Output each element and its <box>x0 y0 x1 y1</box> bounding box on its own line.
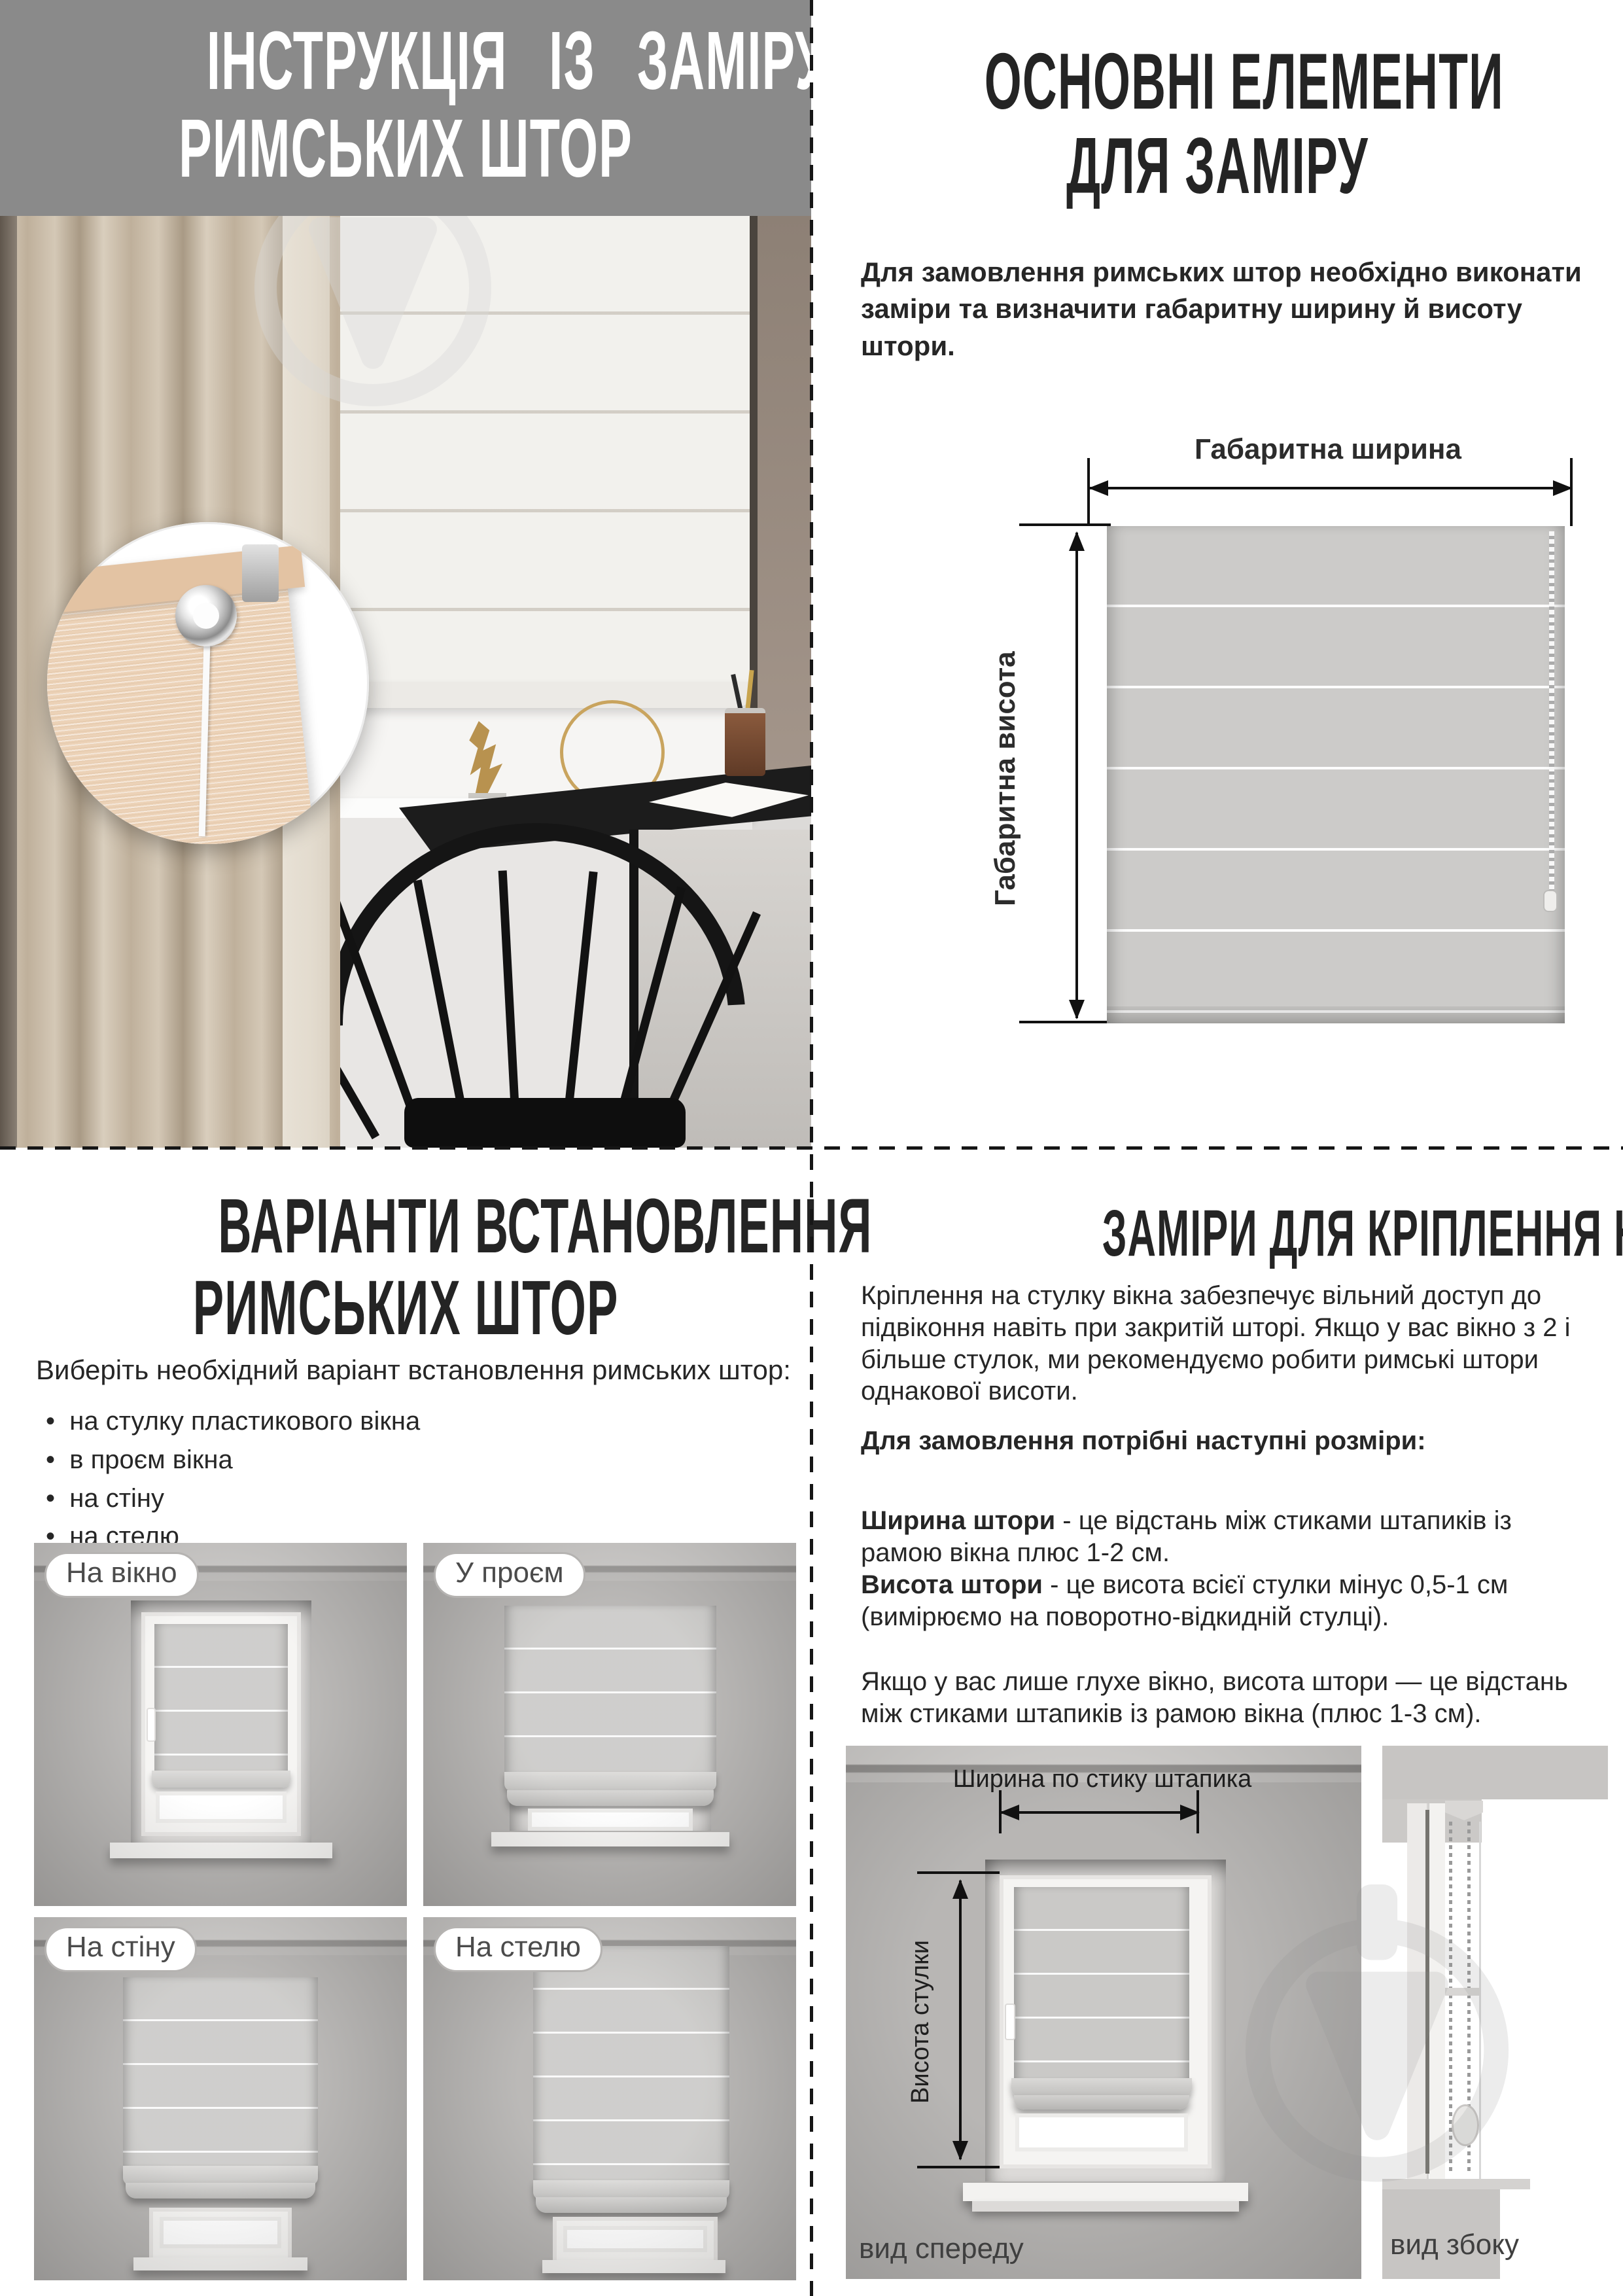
front-blind-fabric <box>1014 1887 1189 2083</box>
window-handle <box>147 1708 156 1742</box>
bl-subtitle: Виберіть необхідний варіант встановлення… <box>36 1353 795 1386</box>
sash-height-tick-top <box>917 1871 1000 1874</box>
blind-fabric <box>123 1977 318 2170</box>
br-para1: Кріплення на стулку вікна забезпечує віл… <box>861 1280 1597 1407</box>
width-term: Ширина штори <box>861 1506 1055 1535</box>
width-tick-left <box>1087 458 1090 526</box>
front-view-caption: вид спереду <box>859 2233 1024 2265</box>
blind-fabric <box>154 1624 288 1776</box>
bl-title-line2: РИМСЬКИХ ШТОР <box>193 1267 619 1349</box>
height-tick-top <box>1019 523 1111 526</box>
window-glazing <box>563 2226 707 2252</box>
bl-title-line1: ВАРІАНТИ ВСТАНОВЛЕННЯ <box>218 1186 872 1267</box>
br-lead: Для замовлення потрібні наступні розміри… <box>861 1425 1597 1457</box>
front-windowsill <box>963 2183 1248 2201</box>
photo-left-wall-edge <box>0 216 17 1148</box>
window-frame <box>141 1612 301 1836</box>
list-item: • в проєм вікна <box>46 1444 765 1476</box>
windowsill <box>133 2257 307 2270</box>
chair <box>306 823 764 1148</box>
blind-fold <box>504 1772 716 1792</box>
br-title-line: ЗАМІРИ ДЛЯ КРІПЛЕННЯ НА СТУЛКУ ВІКНА <box>1102 1199 1623 1268</box>
windowsill <box>110 1843 332 1858</box>
page-title-line1: ІНСТРУКЦІЯ ІЗ ЗАМІРУ <box>207 17 827 105</box>
variant-on-window: На вікно <box>34 1543 407 1906</box>
height-tick-bottom <box>1019 1021 1111 1023</box>
list-item-label: в проєм вікна <box>69 1445 233 1474</box>
height-term: Висота штори <box>861 1570 1043 1599</box>
br-para2: Якщо у вас лише глухе вікно, висота штор… <box>861 1666 1597 1730</box>
side-view-caption: вид збоку <box>1390 2229 1519 2261</box>
mounting-options-list: • на стулку пластикового вікна • в проєм… <box>46 1405 765 1553</box>
sash-height-label: Висота стулки <box>907 1924 935 2120</box>
overall-height-arrow-icon <box>1075 533 1078 1018</box>
sash-height-arrow-icon <box>959 1881 962 2159</box>
front-window-glazing <box>1015 2113 1188 2151</box>
front-window-recess <box>985 1860 1226 2181</box>
grommet-detail-inset <box>47 522 369 844</box>
sash-width-arrow-icon <box>1001 1811 1198 1814</box>
blind-bottom-hem <box>1107 1006 1565 1023</box>
side-sash-profile <box>1429 1803 1445 2181</box>
photo-roman-blind <box>330 216 752 707</box>
list-item: • на стулку пластикового вікна <box>46 1405 765 1438</box>
br-width-definition: Ширина штори - це відстань між стиками ш… <box>861 1505 1597 1569</box>
side-chain-weight <box>1452 2104 1479 2146</box>
blind-fold <box>536 2197 727 2213</box>
horizontal-divider <box>0 1146 1623 1150</box>
instruction-sheet: ІНСТРУКЦІЯ ІЗ ЗАМІРУ РИМСЬКИХ ШТОР <box>0 0 1623 2296</box>
list-item-label: на стулку пластикового вікна <box>69 1407 420 1436</box>
variant-on-wall: На стіну <box>34 1917 407 2280</box>
page-title: ІНСТРУКЦІЯ ІЗ ЗАМІРУ РИМСЬКИХ ШТОР <box>0 0 811 192</box>
variant-label-pill: На стіну <box>44 1926 197 1972</box>
side-view-diagram: вид збоку <box>1382 1746 1608 2279</box>
variant-label-pill: На стелю <box>434 1926 602 1972</box>
window-frame <box>149 2208 292 2263</box>
inset-mount-bracket <box>242 544 279 602</box>
photo-blind-hem <box>330 682 752 708</box>
width-tick-right <box>1570 458 1573 526</box>
grommet-hole <box>193 603 219 629</box>
sash-width-label: Ширина по стику штапика <box>916 1765 1289 1793</box>
tr-title-line1: ОСНОВНІ ЕЛЕМЕНТИ <box>985 39 1504 124</box>
window-glazing <box>156 1792 287 1823</box>
bl-title: ВАРІАНТИ ВСТАНОВЛЕННЯ РИМСЬКИХ ШТОР <box>0 1186 811 1349</box>
blind-fabric <box>533 1946 729 2184</box>
overall-width-arrow-icon <box>1090 487 1571 489</box>
variant-label-pill: У проєм <box>434 1552 585 1598</box>
grommet-icon <box>175 585 237 646</box>
roman-blind-room-photo <box>0 216 811 1148</box>
front-window-frame <box>1000 1875 1212 2168</box>
pen-cup <box>725 708 765 776</box>
side-lintel <box>1382 1746 1608 1799</box>
overall-height-label: Габаритна висота <box>989 582 1022 975</box>
br-title: ЗАМІРИ ДЛЯ КРІПЛЕННЯ НА СТУЛКУ ВІКНА <box>811 1199 1623 1268</box>
sash-width-tick-right <box>1196 1790 1199 1833</box>
photo-right-wall <box>758 216 811 772</box>
tr-intro: Для замовлення римських штор необхідно в… <box>861 254 1587 364</box>
variant-on-ceiling: На стелю <box>423 1917 796 2280</box>
blind-chain-weight <box>1543 890 1558 912</box>
front-blind-fold <box>1014 2095 1189 2110</box>
sash-height-tick-bottom <box>917 2166 1000 2168</box>
overall-width-label: Габаритна ширина <box>1066 433 1590 466</box>
window-frame <box>553 2217 718 2267</box>
bullet-icon: • <box>46 1407 55 1436</box>
bullet-icon: • <box>46 1484 55 1513</box>
front-sill-step <box>972 2201 1239 2212</box>
blind-chain-icon <box>1549 531 1554 898</box>
side-cord <box>1479 1822 1481 2185</box>
tr-title-line2: ДЛЯ ЗАМІРУ <box>1066 124 1369 208</box>
sash-width-tick-left <box>999 1790 1002 1833</box>
blind-fold <box>152 1771 290 1788</box>
window-recess <box>131 1600 311 1843</box>
page-title-line2: РИМСЬКИХ ШТОР <box>179 105 633 192</box>
variant-label-pill: На вікно <box>44 1552 199 1598</box>
variant-in-opening: У проєм <box>423 1543 796 1906</box>
side-mid-bracket <box>1445 1988 1480 1996</box>
chair-seat <box>404 1098 686 1148</box>
windowsill <box>491 1832 729 1846</box>
blind-fabric <box>504 1606 716 1777</box>
front-blind-fold <box>1011 2078 1192 2096</box>
br-height-definition: Висота штори - це висота всієї стулки мі… <box>861 1569 1597 1633</box>
blind-diagram <box>1107 526 1565 1023</box>
tr-title: ОСНОВНІ ЕЛЕМЕНТИ ДЛЯ ЗАМІРУ <box>811 39 1623 209</box>
blind-fold <box>507 1790 714 1806</box>
front-window-handle <box>1005 2004 1015 2040</box>
list-item: • на стіну <box>46 1483 765 1515</box>
list-item-label: на стіну <box>69 1484 164 1513</box>
windowsill <box>542 2260 725 2273</box>
tl-header-band: ІНСТРУКЦІЯ ІЗ ЗАМІРУ РИМСЬКИХ ШТОР <box>0 0 811 216</box>
window-glazing <box>528 1809 693 1831</box>
blind-fold <box>126 2183 315 2199</box>
side-sill-step <box>1382 2179 1530 2189</box>
bullet-icon: • <box>46 1445 55 1474</box>
window-glazing <box>160 2217 281 2248</box>
